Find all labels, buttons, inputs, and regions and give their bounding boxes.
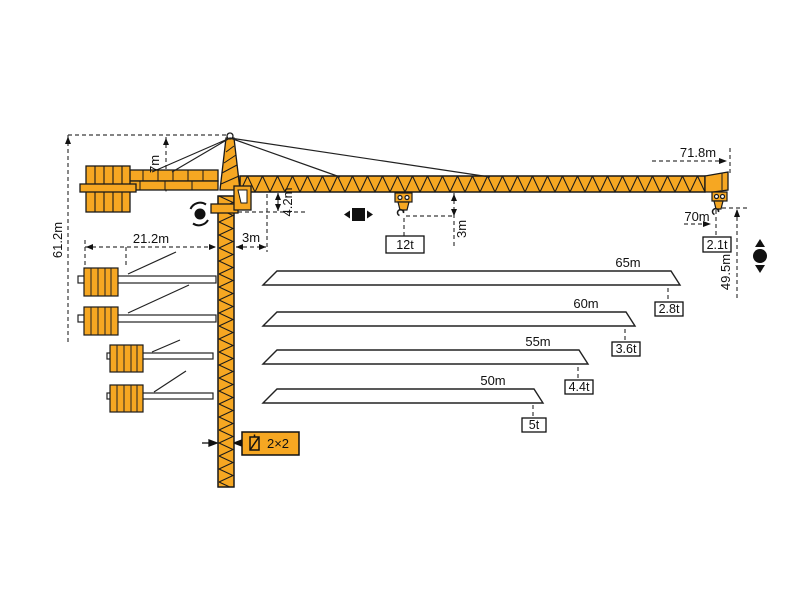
- counterweight-variant-4: [110, 385, 143, 412]
- variant-length-60: 60m: [573, 296, 598, 311]
- variant-length-65: 65m: [615, 255, 640, 270]
- counter-radius-label: 21.2m: [133, 231, 169, 246]
- crane-diagram-canvas: 61.2m 7m 21.2m 3m 4.2m 3m 71.8m 70m 49.5…: [0, 0, 800, 600]
- counter-jib-tie: [152, 138, 230, 172]
- counter-jib-variants: [78, 252, 216, 412]
- variant-length-50: 50m: [480, 373, 505, 388]
- crane-spec-diagram: 61.2m 7m 21.2m 3m 4.2m 3m 71.8m 70m 49.5…: [0, 0, 800, 600]
- counterweight-variant-1: [84, 268, 118, 296]
- total-height-label: 61.2m: [50, 222, 65, 258]
- jib-lattice: [240, 176, 705, 192]
- hook-block: [398, 202, 409, 210]
- jib-variant-60m: [263, 312, 635, 326]
- tip-capacity-label: 2.1t: [707, 238, 728, 252]
- hook-height-label: 49.5m: [718, 254, 733, 290]
- jib-variant-65m: [263, 271, 680, 285]
- tower-top-label: 7m: [147, 155, 162, 173]
- jib-tip: [705, 172, 728, 192]
- max-radius-label: 71.8m: [680, 145, 716, 160]
- mast-lattice: [218, 196, 234, 487]
- jib-tie: [230, 138, 490, 177]
- counterweight-variant-2: [84, 307, 118, 335]
- hoist-icon: [753, 239, 767, 273]
- trolley-travel-icon: [344, 208, 373, 221]
- rear-offset-label: 3m: [242, 230, 260, 245]
- variant-capacity-60: 3.6t: [616, 342, 637, 356]
- crane-structure: [80, 133, 728, 487]
- jib-variant-55m: [263, 350, 588, 364]
- counterweight-beam: [80, 184, 136, 192]
- jib-height-label: 4.2m: [280, 188, 295, 217]
- jib-variant-50m: [263, 389, 543, 403]
- slewing-icon: [191, 203, 209, 226]
- jib-variants: [263, 271, 680, 403]
- variant-capacity-50: 5t: [529, 418, 540, 432]
- counterweight-variant-3: [110, 345, 143, 372]
- trolley-and-hooks: [395, 192, 727, 216]
- variant-length-55: 55m: [525, 334, 550, 349]
- mast-section-label: 2×2: [267, 436, 289, 451]
- tower-top: [220, 138, 240, 190]
- max-capacity-label: 12t: [396, 238, 414, 252]
- tip-radius-label: 70m: [684, 209, 709, 224]
- hook-drop-label: 3m: [454, 220, 469, 238]
- tip-hook-block: [714, 201, 723, 209]
- variant-capacity-65: 2.8t: [659, 302, 680, 316]
- variant-capacity-55: 4.4t: [569, 380, 590, 394]
